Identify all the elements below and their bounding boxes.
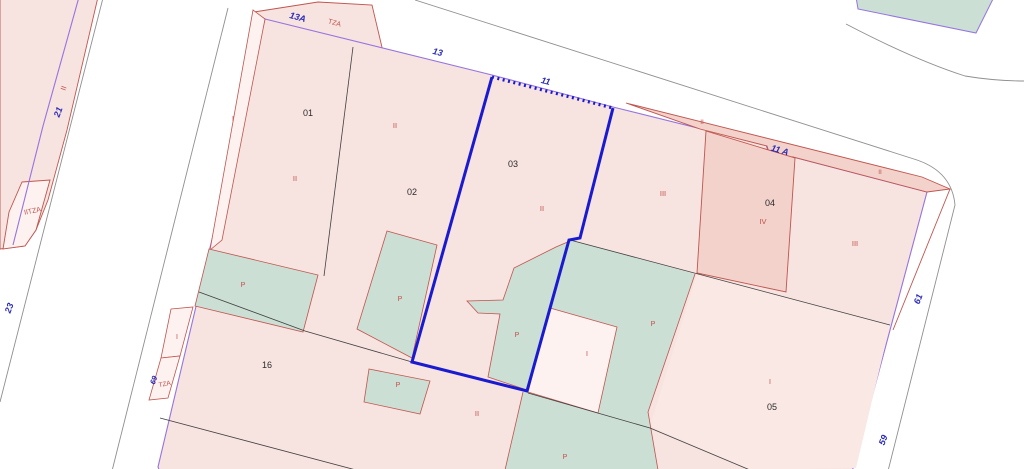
label-band-right: II	[878, 169, 882, 176]
parcel-green-top-right[interactable]	[856, 0, 994, 33]
label-05-i: I	[769, 379, 771, 386]
parcel-number-16: 16	[262, 360, 272, 370]
street-number-61: 61	[912, 293, 925, 306]
label-patio-2: P	[398, 296, 403, 303]
label-04-floors: IV	[759, 217, 766, 226]
label-16-ii: II	[475, 409, 479, 418]
street-edge-top-right-curve	[846, 24, 1024, 81]
label-02-floors: II	[393, 121, 397, 130]
parcel-number-05: 05	[767, 402, 777, 412]
map-svg: 13A 13 11 11 A 21 23 69 61 59 01 02 03 0…	[0, 0, 1024, 469]
label-patio-5: P	[651, 321, 656, 328]
parcel-number-02: 02	[407, 187, 417, 197]
parcel-number-01: 01	[303, 108, 313, 118]
label-right-floors: III	[852, 239, 858, 248]
label-patio-1: P	[241, 282, 246, 289]
label-03-floors: II	[540, 204, 544, 213]
street-number-13: 13	[432, 46, 444, 58]
street-number-23: 23	[2, 302, 15, 316]
street-number-11: 11	[540, 75, 551, 87]
label-01-floors: II	[293, 174, 297, 183]
street-number-59: 59	[877, 434, 890, 447]
label-patio-4: P	[515, 332, 520, 339]
parcel-number-04: 04	[765, 198, 775, 208]
parcel-number-03: 03	[508, 159, 518, 169]
label-patio-3: P	[396, 382, 401, 389]
label-east-floors: III	[660, 189, 666, 198]
label-mid-i: I	[176, 334, 178, 341]
label-band-left: II	[700, 119, 704, 126]
label-white-i: I	[586, 351, 588, 358]
cadastral-map-canvas: 13A 13 11 11 A 21 23 69 61 59 01 02 03 0…	[0, 0, 1024, 469]
label-strip-i: I	[232, 116, 234, 123]
label-patio-6: P	[563, 454, 568, 461]
